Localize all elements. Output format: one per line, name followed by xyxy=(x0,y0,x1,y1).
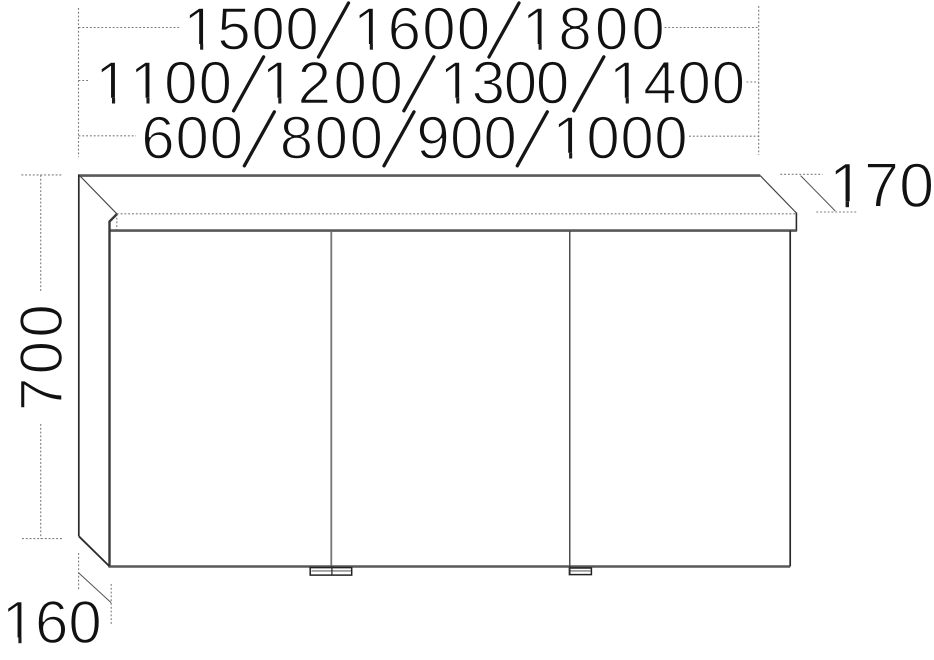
svg-text:900: 900 xyxy=(416,104,517,171)
svg-text:1000: 1000 xyxy=(552,104,688,171)
svg-text:170: 170 xyxy=(829,151,934,221)
svg-text:160: 160 xyxy=(2,589,102,656)
svg-text:600: 600 xyxy=(141,104,244,171)
svg-text:700: 700 xyxy=(8,301,75,411)
svg-text:800: 800 xyxy=(280,104,385,171)
